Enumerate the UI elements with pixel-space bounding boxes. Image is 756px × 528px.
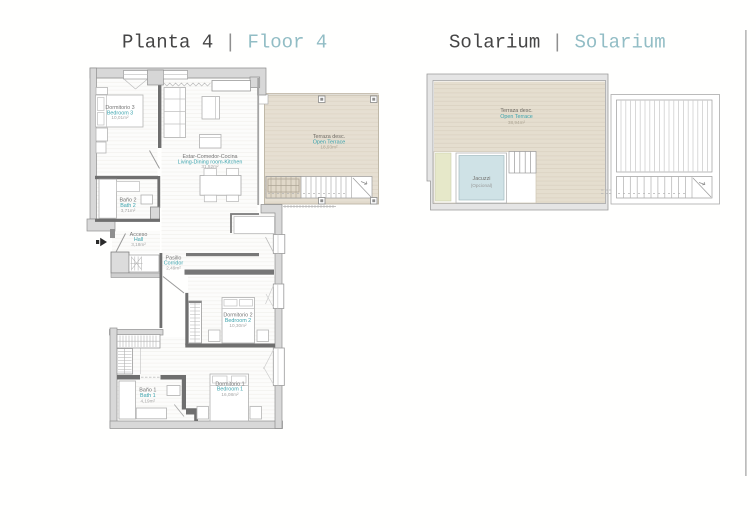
svg-text:(Opcional): (Opcional) <box>471 183 493 188</box>
svg-text:Terraza desc.: Terraza desc. <box>500 108 532 114</box>
svg-text:Solarium | Solarium: Solarium | Solarium <box>449 32 666 54</box>
svg-text:3,71m²: 3,71m² <box>121 208 136 213</box>
svg-text:3,18m²: 3,18m² <box>131 242 146 247</box>
svg-text:31,52m²: 31,52m² <box>201 164 219 169</box>
svg-text:38,94m²: 38,94m² <box>508 120 526 125</box>
svg-text:10,30m²: 10,30m² <box>229 323 247 328</box>
svg-text:4,19m²: 4,19m² <box>141 398 156 403</box>
svg-text:16,08m²: 16,08m² <box>221 392 239 397</box>
svg-text:Jacuzzi: Jacuzzi <box>473 176 491 182</box>
svg-text:10,01m²: 10,01m² <box>111 115 129 120</box>
svg-text:2,49m²: 2,49m² <box>166 266 181 271</box>
svg-text:18,93m²: 18,93m² <box>320 144 338 149</box>
svg-text:Planta 4 | Floor 4: Planta 4 | Floor 4 <box>122 32 327 54</box>
